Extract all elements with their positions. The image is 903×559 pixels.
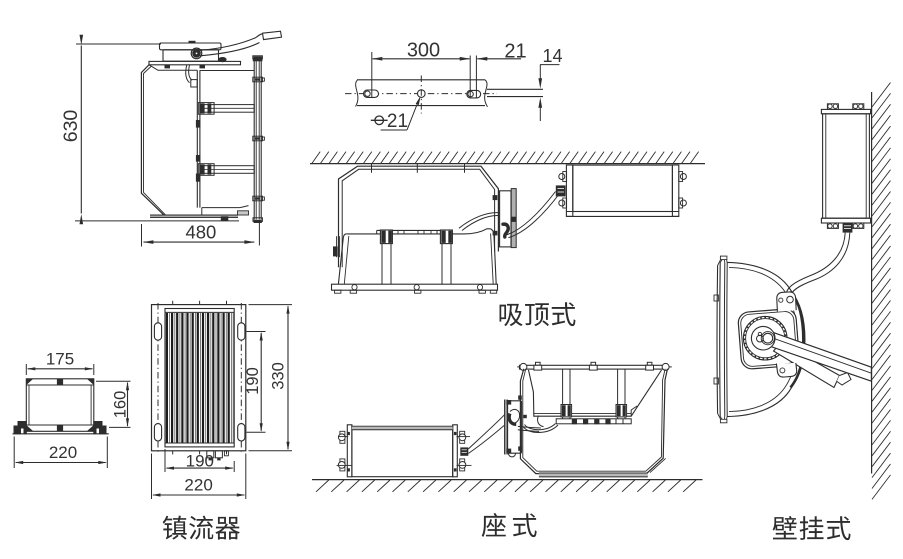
svg-text:300: 300 [407,40,440,62]
svg-text:220: 220 [49,443,77,462]
svg-text:190: 190 [186,452,214,471]
svg-text:160: 160 [112,391,130,419]
svg-text:21: 21 [387,111,408,132]
svg-text:190: 190 [244,367,262,395]
svg-text:630: 630 [60,110,82,143]
svg-text:21: 21 [504,41,526,63]
svg-text:220: 220 [184,476,212,495]
svg-text:14: 14 [542,46,562,66]
svg-text:480: 480 [185,222,216,243]
svg-text:175: 175 [46,350,74,369]
svg-text:330: 330 [270,362,288,390]
